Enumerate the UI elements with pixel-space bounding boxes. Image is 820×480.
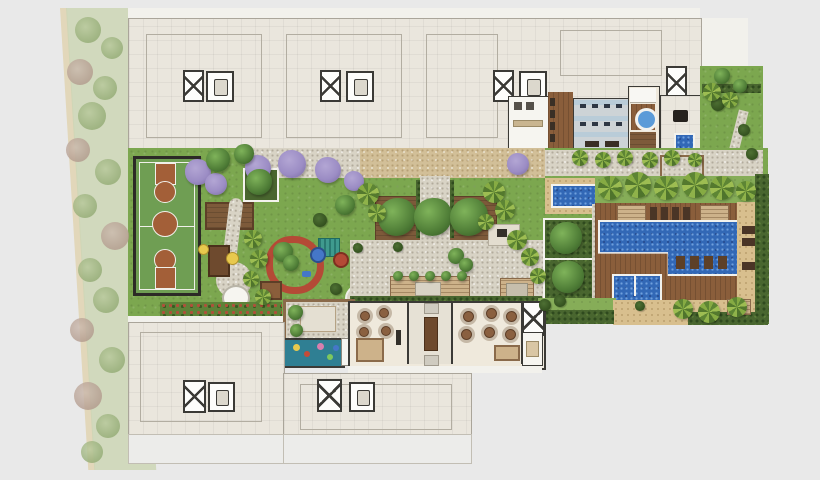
shrub-icon	[635, 301, 645, 311]
palm-tree-icon	[710, 176, 734, 200]
shrub-icon	[539, 299, 551, 311]
sand-umbrella-icon	[226, 252, 239, 265]
garden-rooms-divider	[543, 258, 592, 260]
party-table	[506, 311, 517, 322]
gym-bench-icon	[585, 141, 599, 147]
palm-tree-icon	[642, 152, 658, 168]
stair-core-icon	[320, 70, 341, 102]
palm-tree-icon	[368, 204, 386, 222]
palm-tree-icon	[722, 92, 738, 108]
street-tree-icon	[99, 347, 125, 373]
palm-tree-icon	[703, 83, 721, 101]
unit-outline	[560, 30, 662, 76]
purple-tree-icon	[278, 150, 306, 178]
gym-equipment-icon	[580, 104, 586, 108]
buffet-icon	[494, 345, 520, 361]
gym-equipment-icon	[592, 104, 598, 108]
purple-tree-icon	[315, 157, 341, 183]
court-circle-top	[154, 181, 176, 203]
palm-tree-icon	[495, 200, 515, 220]
street-tree-icon	[74, 382, 102, 410]
sofa-icon	[356, 338, 384, 362]
east-deck	[737, 202, 757, 302]
deck-lounger-icon	[742, 238, 755, 246]
palm-tree-icon	[478, 214, 494, 230]
toy-icon	[293, 344, 300, 351]
palm-tree-icon	[357, 183, 379, 205]
gym-bench-icon	[605, 141, 619, 147]
palm-tree-icon	[682, 172, 708, 198]
lounge-table	[379, 308, 389, 318]
street-tree-icon	[101, 222, 129, 250]
toy-icon	[304, 351, 310, 357]
tower-sw-outline	[128, 434, 285, 464]
pergola-stone-center	[415, 282, 441, 296]
locker-fixture-icon	[514, 102, 522, 110]
palm-tree-icon	[598, 176, 622, 200]
palm-tree-icon	[654, 176, 678, 200]
street-tree-icon	[66, 138, 90, 162]
massage-table-icon	[673, 110, 688, 122]
unit-outline	[426, 34, 498, 138]
party-table	[461, 329, 472, 340]
palm-tree-icon	[664, 150, 680, 166]
palm-tree-icon	[625, 172, 651, 198]
street-tree-icon	[93, 76, 117, 100]
site-plan-canvas	[0, 0, 820, 480]
palm-tree-icon	[617, 150, 633, 166]
weight-rack-icon	[550, 98, 555, 106]
utility-fixture-icon	[526, 341, 539, 357]
locker-fixture-icon	[526, 102, 534, 110]
street-tree-icon	[73, 194, 97, 218]
trampoline-icon	[310, 247, 326, 263]
palm-tree-icon	[736, 181, 756, 201]
party-table	[505, 329, 516, 340]
gym-equipment-icon	[604, 122, 610, 126]
palm-tree-icon	[698, 301, 720, 323]
tree-icon	[290, 324, 303, 337]
palm-tree-icon	[250, 250, 268, 268]
palm-tree-icon	[572, 150, 588, 166]
street-tree-icon	[78, 258, 102, 282]
in-pool-lounger-icon	[704, 256, 713, 269]
stair-core-icon	[183, 70, 204, 102]
tree-icon	[288, 305, 303, 320]
palm-tree-icon	[255, 289, 271, 305]
palm-tree-icon	[521, 248, 539, 266]
palm-tree-icon	[244, 230, 262, 248]
tv-cabinet-icon	[396, 330, 401, 345]
lounge-table	[360, 311, 370, 321]
deck-lounger-icon	[650, 207, 657, 220]
unit-outline	[286, 34, 402, 138]
purple-tree-icon	[507, 153, 529, 175]
court-key-bottom	[155, 267, 176, 289]
lounge-table	[359, 327, 369, 337]
south-rooms-sidewalk	[348, 366, 542, 373]
shrub-icon	[353, 243, 363, 253]
street-tree-icon	[101, 37, 123, 59]
elevator-core-icon	[346, 71, 374, 102]
gym-equipment-icon	[580, 122, 586, 126]
palm-tree-icon	[530, 268, 546, 284]
deck-lounger-icon	[742, 262, 755, 270]
street-tree-icon	[95, 159, 121, 185]
stair-core-icon	[183, 380, 206, 413]
kids-pool	[612, 274, 662, 302]
deck-lounger-icon	[661, 207, 668, 220]
gym-equipment-icon	[592, 122, 598, 126]
sand-umbrella-icon	[198, 244, 209, 255]
palm-tree-icon	[673, 299, 693, 319]
play-disc-icon	[333, 252, 349, 268]
south-hedge	[538, 310, 614, 324]
gym-equipment-icon	[616, 104, 622, 108]
street-tree-icon	[93, 287, 119, 313]
shrub-icon	[393, 242, 403, 252]
purple-tree-icon	[205, 173, 227, 195]
party-table	[484, 327, 495, 338]
party-table	[486, 308, 497, 319]
shrub-icon	[313, 213, 327, 227]
street-tree-icon	[75, 17, 101, 43]
palm-tree-icon	[727, 297, 747, 317]
toy-icon	[327, 354, 333, 360]
elevator-core-icon	[349, 382, 375, 412]
palm-tree-icon	[688, 153, 702, 167]
shrub-icon	[746, 148, 758, 160]
elevator-core-icon	[208, 382, 235, 412]
gym-equipment-icon	[604, 104, 610, 108]
pergola-rug	[506, 283, 528, 297]
street-tree-icon	[67, 59, 93, 85]
unit-outline	[146, 34, 262, 138]
stair-core-icon	[317, 379, 342, 412]
toy-icon	[333, 345, 339, 351]
street-tree-icon	[81, 441, 103, 463]
gym-equipment-icon	[616, 122, 622, 126]
spa-bath-strip	[630, 88, 656, 103]
courtyard-table-icon	[497, 229, 507, 237]
locker-bench-icon	[513, 120, 543, 127]
deck-lounger-icon	[683, 207, 690, 220]
court-center-circle	[152, 211, 178, 237]
in-pool-lounger-icon	[718, 256, 727, 269]
palm-tree-icon	[507, 230, 527, 250]
weight-rack-icon	[550, 122, 555, 130]
toy-car-icon	[302, 271, 311, 277]
perimeter-hedge-east	[755, 174, 769, 324]
lobby-table-icon	[424, 317, 438, 351]
patio-inner-rug	[300, 306, 336, 332]
street-tree-icon	[70, 318, 94, 342]
lounge-table	[381, 326, 391, 336]
kids-pool-divider	[634, 276, 636, 296]
weight-rack-icon	[550, 110, 555, 118]
vestibule	[424, 303, 439, 314]
shrub-icon	[330, 283, 342, 295]
in-pool-lounger-icon	[676, 256, 685, 269]
palm-tree-icon	[243, 271, 259, 287]
elevator-core-icon	[206, 71, 234, 102]
toy-icon	[317, 343, 324, 350]
deck-lounger-icon	[742, 226, 755, 234]
in-pool-lounger-icon	[690, 256, 699, 269]
kids-playroom	[283, 338, 345, 368]
weight-rack-icon	[550, 134, 555, 142]
tower-s-outline	[283, 434, 472, 464]
jacuzzi-icon	[635, 108, 658, 131]
street-tree-icon	[78, 102, 106, 130]
shrub-icon	[554, 295, 566, 307]
north-east-sidewalk	[700, 18, 748, 66]
deck-lounger-icon	[672, 207, 679, 220]
vestibule	[424, 355, 439, 366]
party-table	[463, 311, 474, 322]
palm-tree-icon	[595, 152, 611, 168]
street-tree-icon	[96, 414, 120, 438]
shrub-icon	[738, 124, 750, 136]
